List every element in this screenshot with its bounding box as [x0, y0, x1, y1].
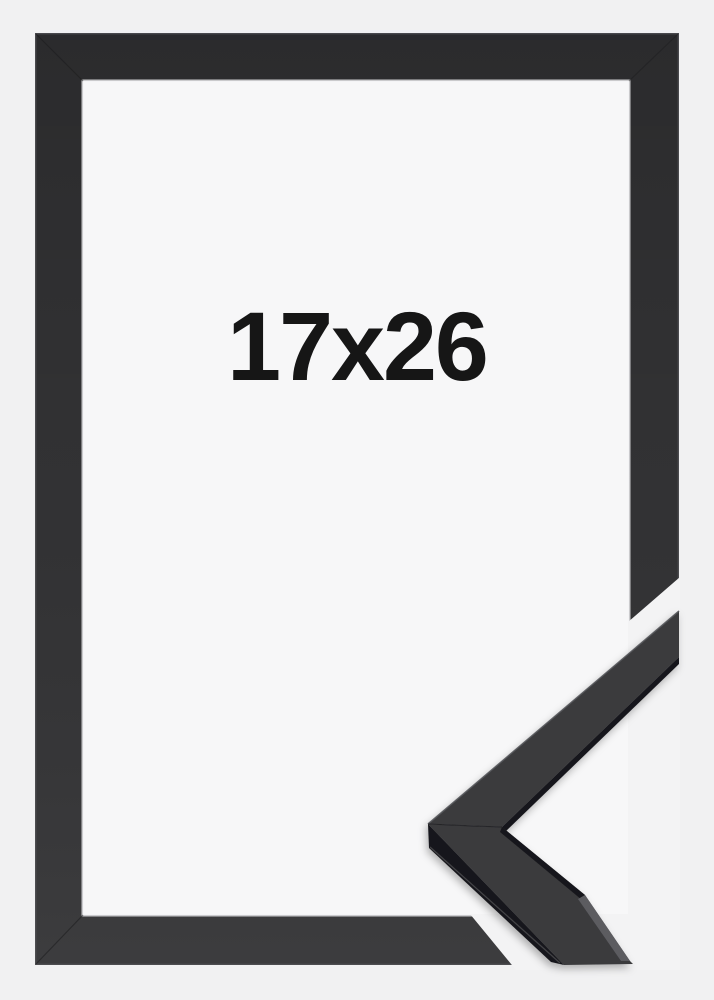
product-photo: 17x26	[0, 0, 714, 1000]
frame-illustration	[0, 0, 714, 1000]
size-label: 17x26	[0, 294, 714, 400]
